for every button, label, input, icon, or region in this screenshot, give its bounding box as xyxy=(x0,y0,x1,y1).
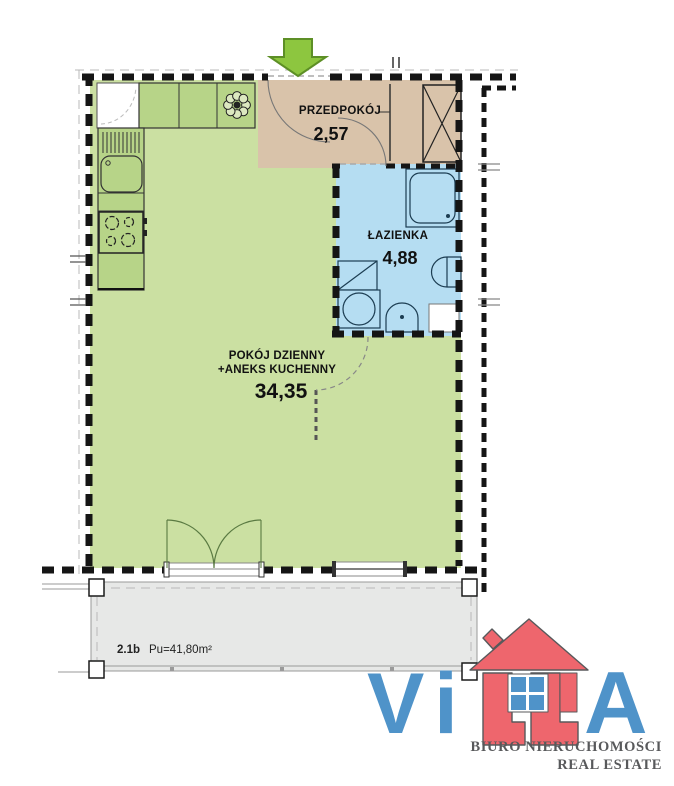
column-icon xyxy=(89,661,104,678)
bath-mat xyxy=(429,304,459,332)
bathroom-label: ŁAZIENKA xyxy=(368,230,429,242)
living-room-label-line1: POKÓJ DZIENNY xyxy=(218,349,336,363)
living-room-label: POKÓJ DZIENNY +ANEKS KUCHENNY xyxy=(218,349,336,377)
balcony-label: 2.1bPu=41,80m² xyxy=(117,644,212,656)
railing-post xyxy=(170,667,174,671)
logo-tagline: BIURO NIERUCHOMOŚCI REAL ESTATE xyxy=(342,738,662,774)
floorplan-page: V i A PRZEDPOKÓJ 2,57 ŁAZIENKA 4,88 xyxy=(0,0,674,786)
living-room-area: 34,35 xyxy=(255,380,308,404)
balcony-window xyxy=(332,561,407,577)
hallway-area: 2,57 xyxy=(313,124,348,145)
washing-machine-icon xyxy=(338,290,380,328)
kitchen-counter-left xyxy=(98,128,144,290)
washbasin-dot xyxy=(400,315,404,319)
logo-tagline-line2: REAL ESTATE xyxy=(342,756,662,774)
logo-tagline-line1: BIURO NIERUCHOMOŚCI xyxy=(342,738,662,756)
logo-house-icon xyxy=(470,619,588,745)
shower-icon xyxy=(406,169,459,227)
hallway-label: PRZEDPOKÓJ xyxy=(299,105,381,117)
logo-house-wall xyxy=(560,673,577,712)
logo-roof xyxy=(470,619,588,670)
unit-number: 2.1b xyxy=(117,644,140,656)
cooktop-fan-icon xyxy=(224,92,251,119)
logo-window-icon xyxy=(508,674,548,712)
shower-drain-dot xyxy=(446,214,450,218)
floorplan-graphics: V i A xyxy=(0,0,674,786)
usable-area: Pu=41,80m² xyxy=(149,644,212,656)
column-icon xyxy=(89,579,104,596)
fridge-icon xyxy=(97,83,139,128)
living-room-label-line2: +ANEKS KUCHENNY xyxy=(218,363,336,377)
column-icon xyxy=(462,579,477,596)
bathroom-area: 4,88 xyxy=(382,248,417,269)
railing-post xyxy=(280,667,284,671)
